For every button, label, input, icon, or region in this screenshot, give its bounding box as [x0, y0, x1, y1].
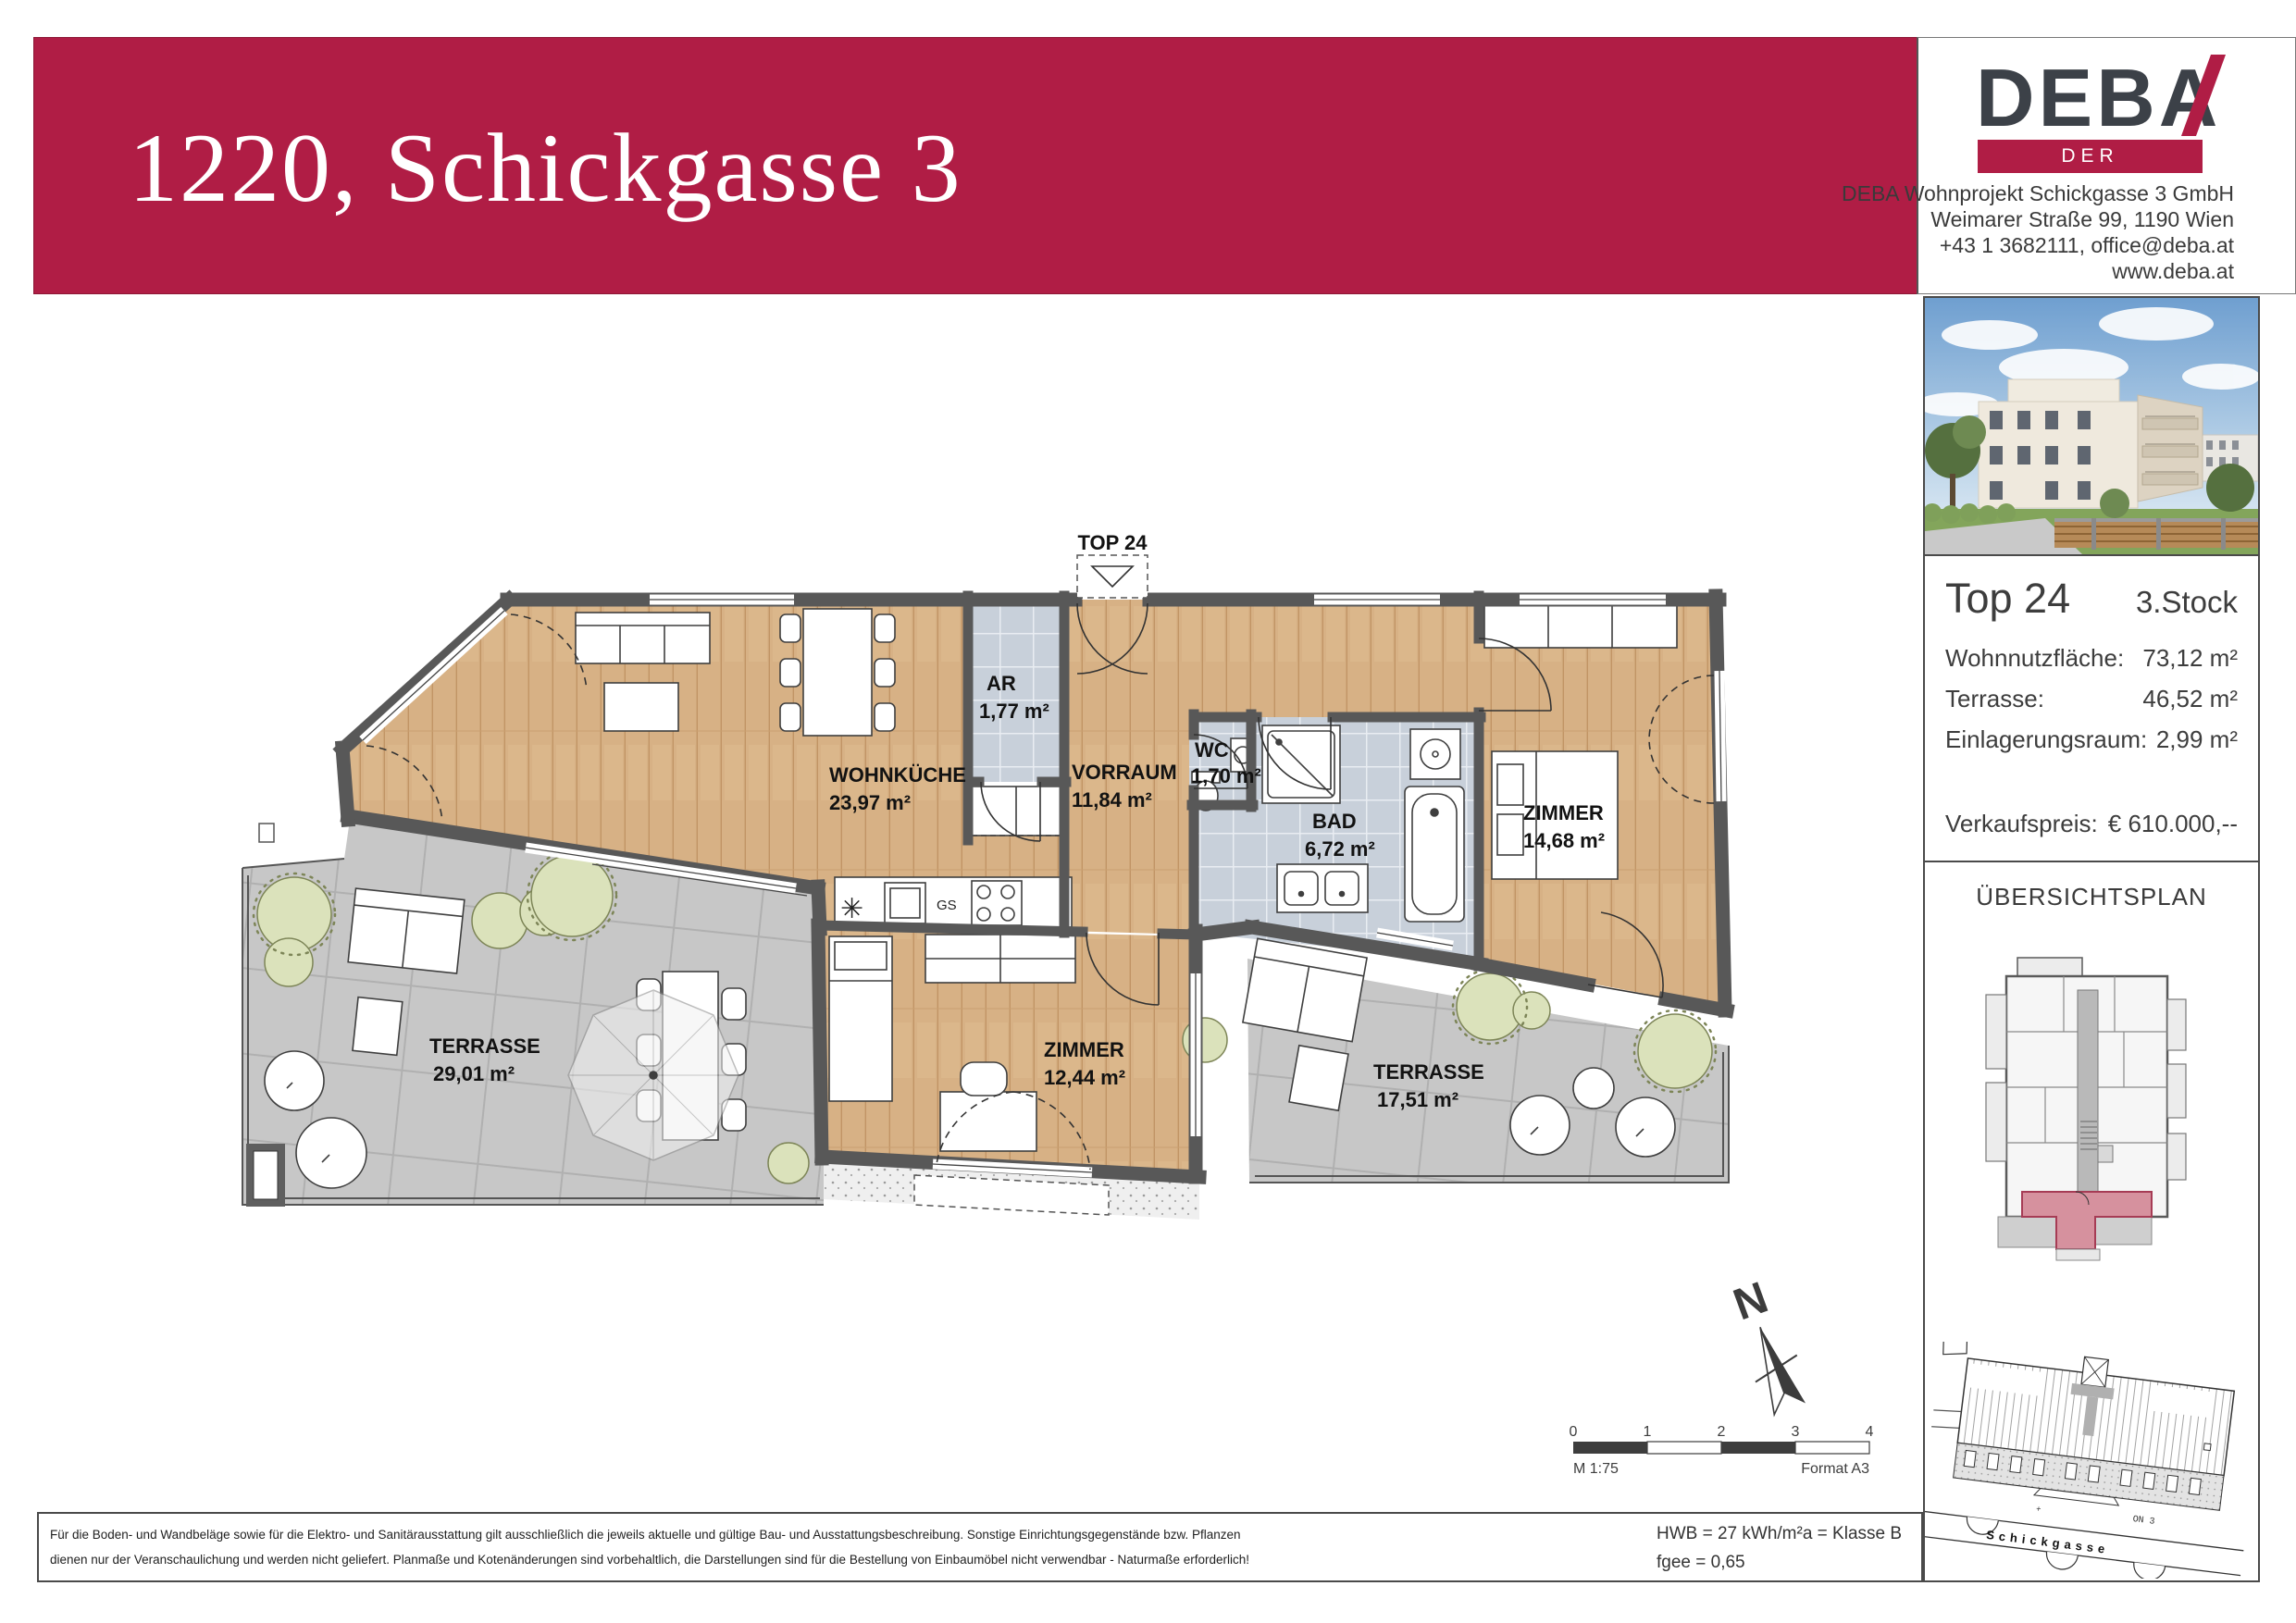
label-terrasse1-area: 29,01 m²	[433, 1062, 515, 1085]
label-wc-area: 1,70 m²	[1191, 764, 1261, 787]
label-zimmer1-area: 14,68 m²	[1523, 829, 1605, 852]
dishwasher-label: GS	[937, 898, 957, 913]
wooden-fence	[2054, 518, 2258, 550]
row-label: Einlagerungsraum:	[1945, 719, 2147, 760]
scale-tick-1: 1	[1644, 1424, 1652, 1440]
row-terrasse: Terrasse: 46,52 m²	[1945, 678, 2238, 719]
sidebar: Top 24 3.Stock Wohnnutzfläche: 73,12 m² …	[1923, 296, 2260, 1582]
label-wc: WC	[1195, 738, 1229, 762]
label-vorraum-area: 11,84 m²	[1072, 788, 1152, 811]
company-line1: DEBA Wohnprojekt Schickgasse 3 GmbH	[1842, 180, 2234, 206]
logo-block: DEBA DER BAUTRÄGER DEBA Wohnprojekt Schi…	[1917, 37, 2296, 294]
format-label: Format A3	[1801, 1461, 1869, 1477]
label-terrasse2-area: 17,51 m²	[1377, 1088, 1458, 1111]
title-banner: 1220, Schickgasse 3	[33, 37, 1917, 294]
company-line4: www.deba.at	[1842, 258, 2234, 284]
energy-line2: fgee = 0,65	[1657, 1548, 1902, 1577]
overview-title: ÜBERSICHTSPLAN	[1925, 883, 2258, 911]
disclaimer-box: Für die Boden- und Wandbeläge sowie für …	[37, 1512, 1923, 1582]
svg-text:+: +	[2036, 1504, 2042, 1514]
unit-data-rows: Wohnnutzfläche: 73,12 m² Terrasse: 46,52…	[1945, 638, 2238, 760]
scale-bar: 0 1 2 3 4 M 1:75 Format A3	[1570, 1424, 1874, 1477]
scale-tick-0: 0	[1570, 1424, 1578, 1440]
sink-symbol: ✳	[840, 894, 863, 924]
label-ar-area: 1,77 m²	[979, 700, 1049, 723]
row-label: Wohnnutzfläche:	[1945, 638, 2124, 678]
entrance	[1077, 555, 1148, 598]
company-address: DEBA Wohnprojekt Schickgasse 3 GmbH Weim…	[1842, 180, 2234, 284]
row-value: 73,12 m²	[2142, 638, 2238, 678]
label-zimmer2-area: 12,44 m²	[1044, 1066, 1125, 1089]
company-line3: +43 1 3682111, office@deba.at	[1842, 232, 2234, 258]
company-line2: Weimarer Straße 99, 1190 Wien	[1842, 206, 2234, 232]
row-einlagerungsraum: Einlagerungsraum: 2,99 m²	[1945, 719, 2238, 760]
label-bad-area: 6,72 m²	[1305, 837, 1375, 861]
label-ar: AR	[987, 672, 1016, 695]
label-zimmer1: ZIMMER	[1523, 801, 1604, 824]
site-plan: ON 3 + Schickgasse	[1925, 1342, 2258, 1579]
floorplan-sheet: { "header": { "title": "1220, Schickgass…	[0, 0, 2296, 1623]
price-label: Verkaufspreis:	[1945, 810, 2098, 838]
deba-tagline: DER BAUTRÄGER	[1978, 140, 2203, 173]
row-value: 46,52 m²	[2142, 678, 2238, 719]
energy-values: HWB = 27 kWh/m²a = Klasse B fgee = 0,65	[1657, 1519, 1902, 1577]
row-value: 2,99 m²	[2156, 719, 2238, 760]
price-row: Verkaufspreis: € 610.000,--	[1945, 810, 2238, 838]
room-ar-floor	[968, 600, 1064, 782]
scale-tick-4: 4	[1866, 1424, 1874, 1440]
north-arrow: N	[1720, 1270, 1813, 1417]
unit-floor: 3.Stock	[2136, 585, 2238, 620]
row-wohnnutzflaeche: Wohnnutzfläche: 73,12 m²	[1945, 638, 2238, 678]
disclaimer-line1: Für die Boden- und Wandbeläge sowie für …	[50, 1522, 1249, 1547]
disclaimer-text: Für die Boden- und Wandbeläge sowie für …	[50, 1522, 1249, 1572]
scale-tick-3: 3	[1792, 1424, 1800, 1440]
label-terrasse2: TERRASSE	[1373, 1060, 1484, 1084]
disclaimer-line2: dienen nur der Veranschaulichung und wer…	[50, 1547, 1249, 1572]
label-terrasse1: TERRASSE	[429, 1035, 540, 1058]
unit-info-panel: Top 24 3.Stock Wohnnutzfläche: 73,12 m² …	[1925, 554, 2258, 862]
label-wohnkueche: WOHNKÜCHE	[829, 763, 966, 787]
row-label: Terrasse:	[1945, 678, 2044, 719]
unit-number: Top 24	[1945, 575, 2070, 623]
label-zimmer2: ZIMMER	[1044, 1038, 1124, 1061]
north-label: N	[1728, 1273, 1775, 1331]
scale-label: M 1:75	[1573, 1461, 1619, 1477]
building-photo	[1925, 298, 2258, 554]
price-value: € 610.000,--	[2108, 810, 2238, 838]
overview-plan	[1925, 935, 2258, 1353]
scale-tick-2: 2	[1718, 1424, 1726, 1440]
label-wohnkueche-area: 23,97 m²	[829, 791, 911, 814]
house-number-label: ON 3	[2132, 1515, 2155, 1528]
label-entrance: TOP 24	[1077, 531, 1148, 554]
label-bad: BAD	[1312, 810, 1357, 833]
page-title: 1220, Schickgasse 3	[129, 112, 962, 225]
energy-line1: HWB = 27 kWh/m²a = Klasse B	[1657, 1519, 1902, 1548]
label-vorraum: VORRAUM	[1072, 761, 1177, 784]
